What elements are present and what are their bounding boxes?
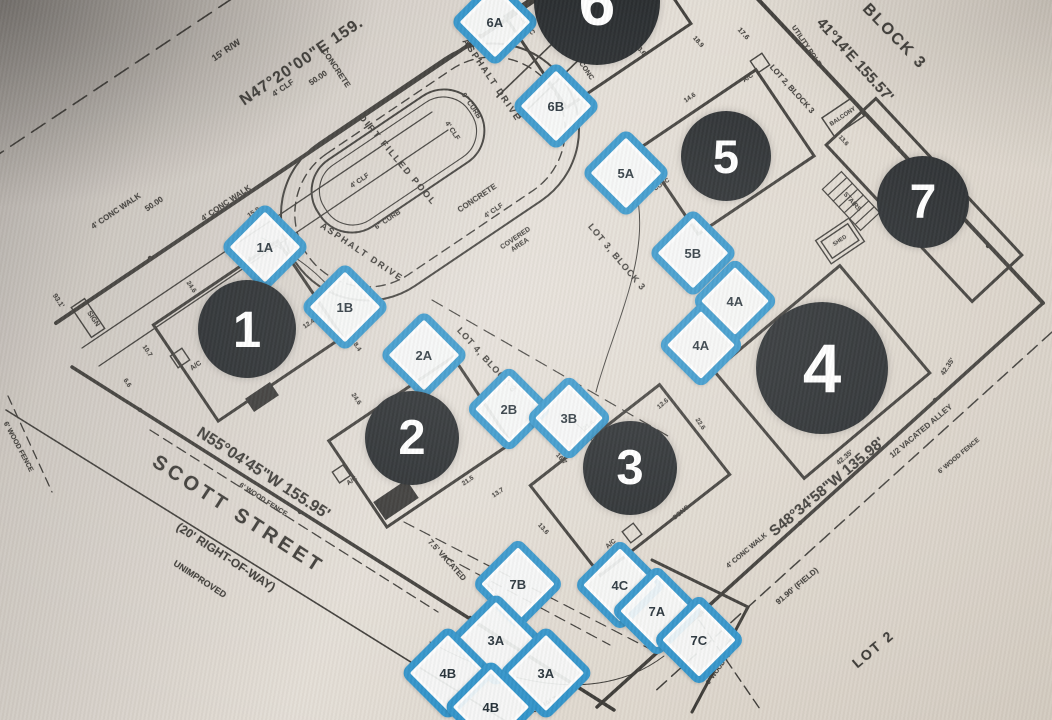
- unit-marker-label: 4A: [693, 338, 710, 353]
- unit-marker-label: 7B: [510, 577, 527, 592]
- photo-point-5[interactable]: 5: [681, 111, 771, 201]
- unit-marker-label: 4B: [440, 666, 457, 681]
- unit-marker-label: 3A: [538, 666, 555, 681]
- unit-marker-label: 1A: [257, 240, 274, 255]
- unit-marker-label: 1B: [337, 300, 354, 315]
- unit-marker-label: 2B: [501, 402, 518, 417]
- plat-photo: N47°20'00"E 159.41°14'E 155.57'N55°04'45…: [0, 0, 1052, 720]
- unit-marker-label: 4B: [483, 700, 500, 715]
- unit-marker-label: 4C: [612, 578, 629, 593]
- photo-point-1[interactable]: 1: [198, 280, 296, 378]
- unit-marker-label: 6A: [487, 15, 504, 30]
- unit-marker-label: 4A: [727, 294, 744, 309]
- photo-point-3[interactable]: 3: [583, 421, 677, 515]
- unit-marker-label: 7C: [691, 633, 708, 648]
- unit-marker-label: 5A: [618, 166, 635, 181]
- photo-point-7[interactable]: 7: [877, 156, 969, 248]
- unit-marker-label: 2A: [416, 348, 433, 363]
- photo-point-4[interactable]: 4: [756, 302, 888, 434]
- photo-point-2[interactable]: 2: [365, 391, 459, 485]
- unit-marker-label: 6B: [548, 99, 565, 114]
- unit-marker-label: 3A: [488, 633, 505, 648]
- unit-marker-label: 5B: [685, 246, 702, 261]
- unit-marker-label: 3B: [561, 411, 578, 426]
- unit-marker-label: 7A: [649, 604, 666, 619]
